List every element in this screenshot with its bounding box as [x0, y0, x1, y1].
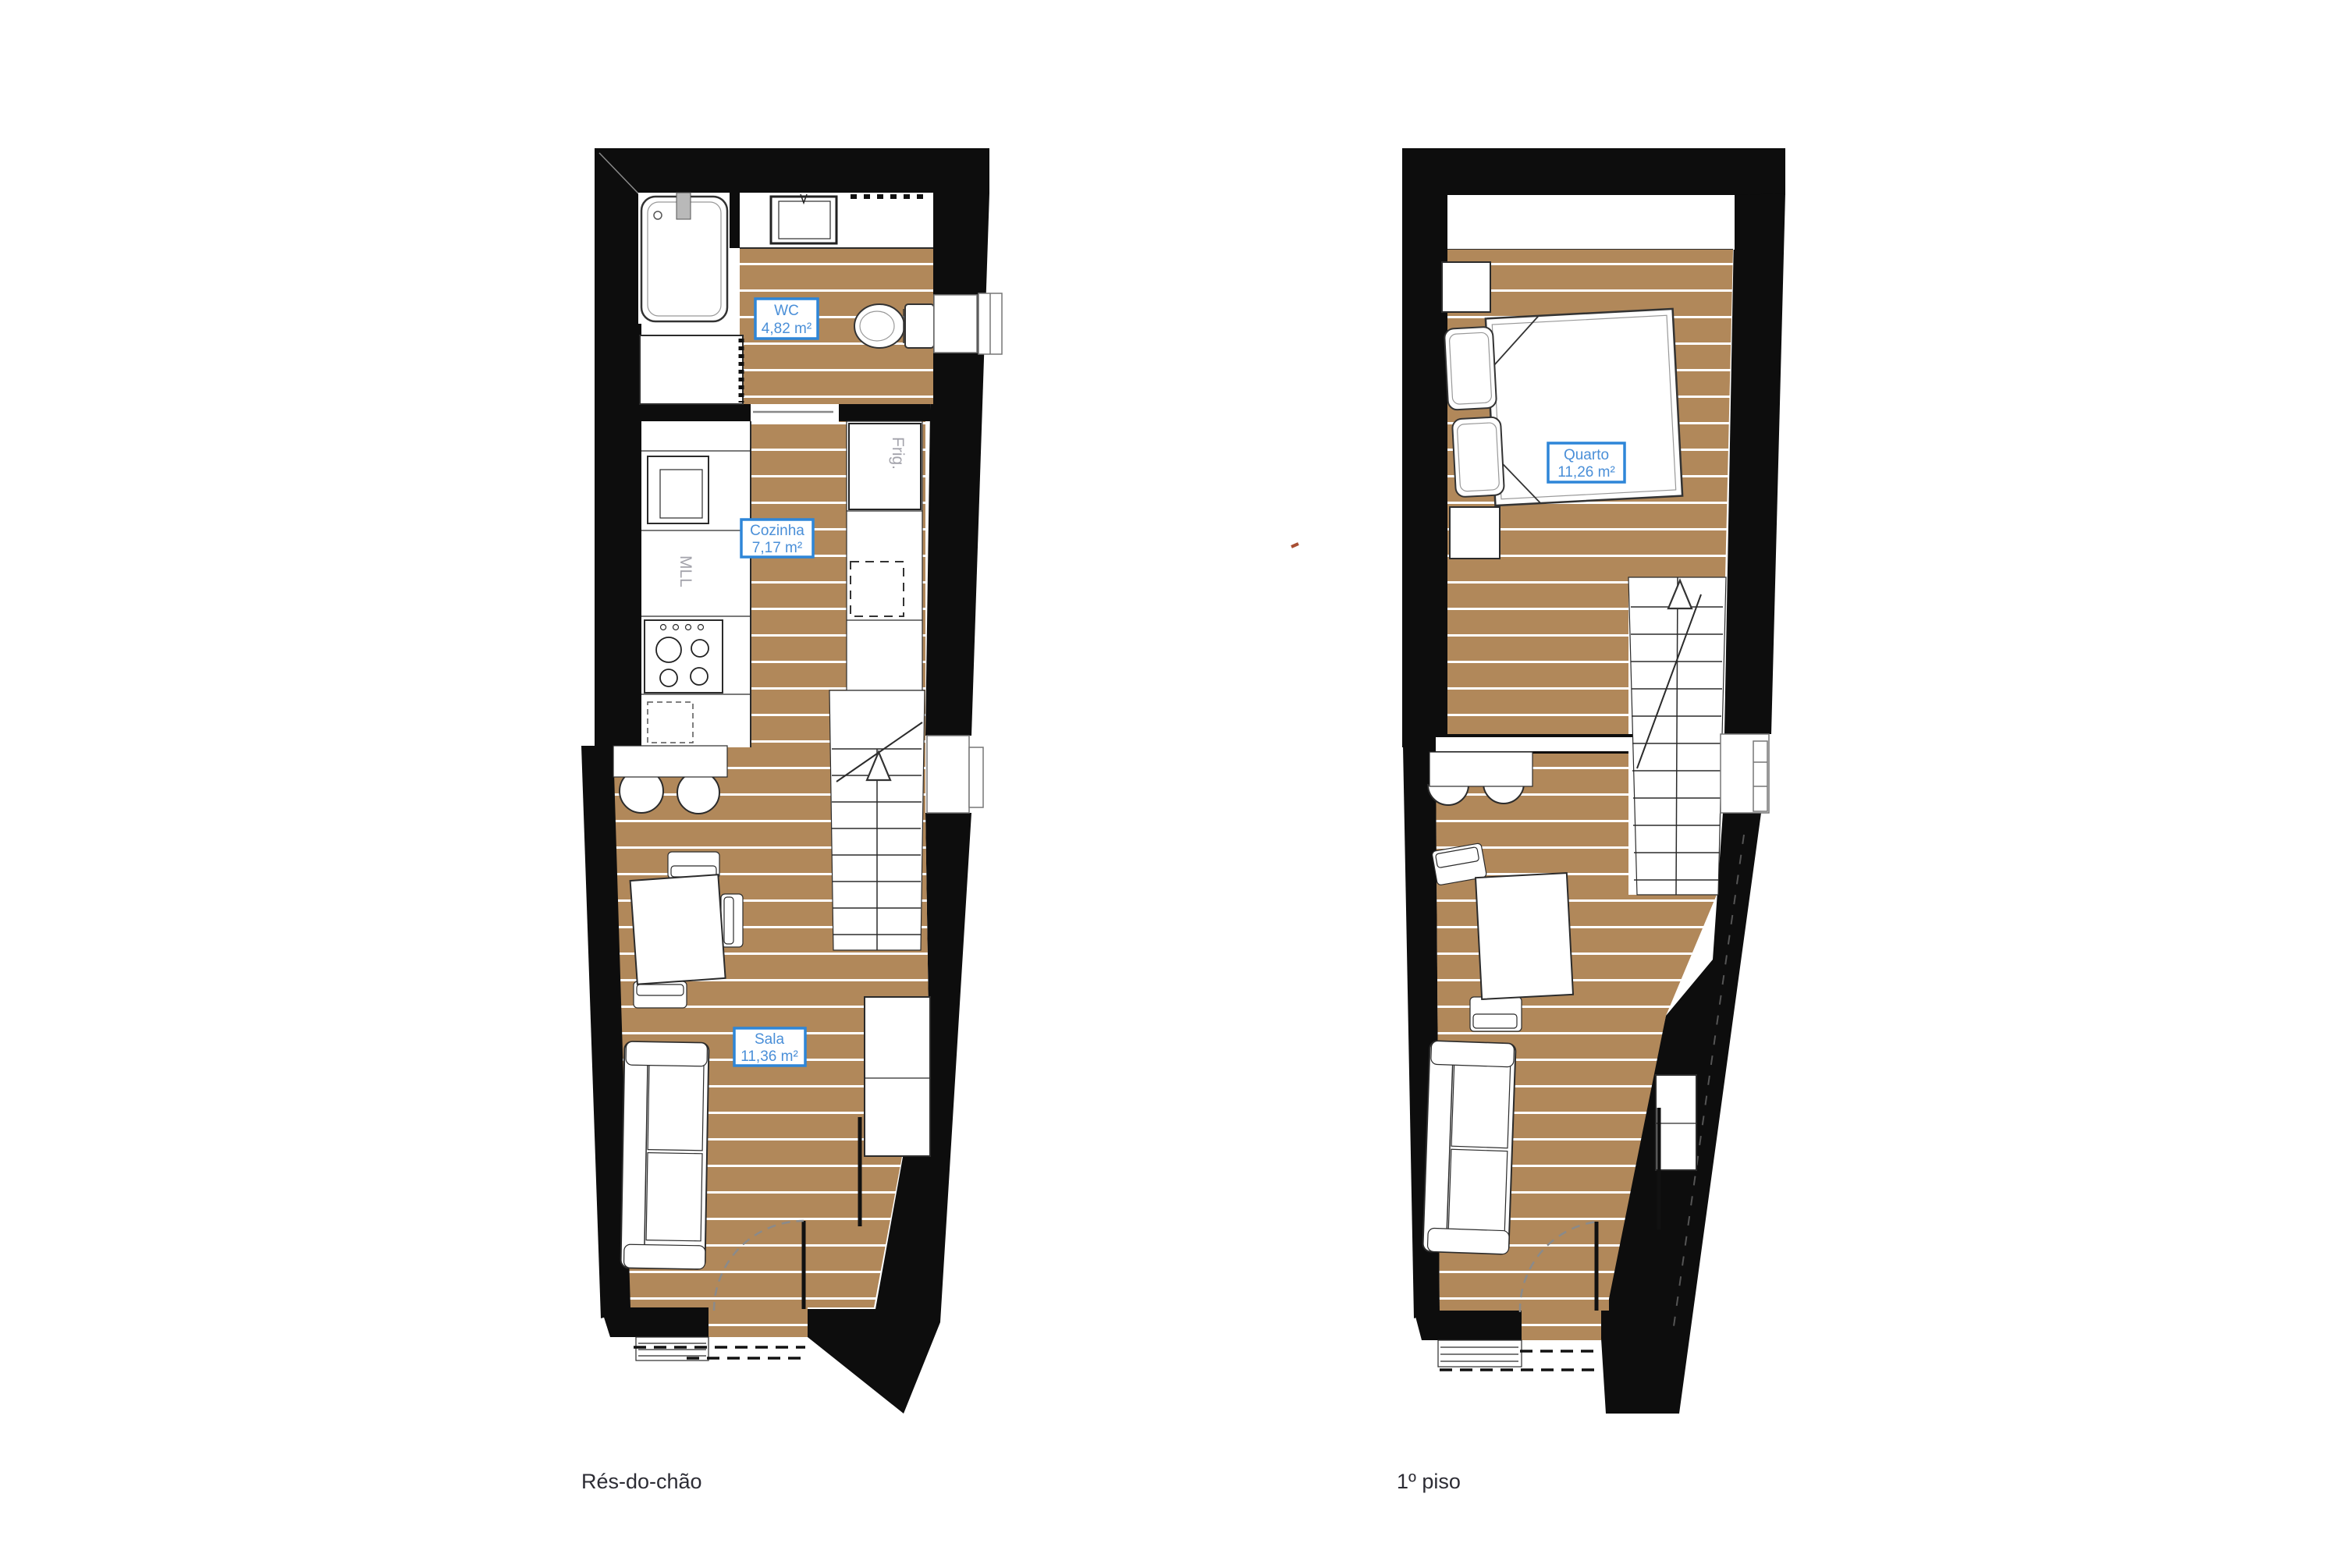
stray-mark	[1291, 544, 1298, 547]
plan-caption-ground: Rés-do-chão	[581, 1470, 702, 1493]
chair	[1470, 997, 1522, 1031]
stove	[645, 620, 723, 693]
svg-text:Cozinha: Cozinha	[750, 523, 804, 539]
level-boundary	[1436, 734, 1639, 754]
stairs-window-ground	[927, 736, 983, 813]
stairs-first	[1628, 577, 1726, 895]
floorplan-canvas: MLL Frig.	[0, 0, 2344, 1568]
kitchen-sink	[648, 456, 709, 523]
svg-text:Sala: Sala	[755, 1031, 784, 1048]
fridge-column: Frig.	[847, 421, 922, 690]
room-label-wc: WC 4,82 m²	[755, 299, 818, 339]
table	[630, 874, 726, 984]
svg-text:11,26 m²: 11,26 m²	[1557, 464, 1615, 481]
room-label-quarto: Quarto 11,26 m²	[1548, 443, 1625, 482]
bathtub	[638, 193, 730, 324]
room-label-sala: Sala 11,36 m²	[734, 1028, 805, 1066]
plan-caption-first: 1º piso	[1397, 1470, 1461, 1493]
stairs-window-first	[1721, 734, 1769, 813]
svg-text:4,82 m²: 4,82 m²	[762, 321, 812, 337]
bathtub-drain	[654, 211, 662, 219]
fridge	[849, 424, 921, 509]
entry-steps-first	[1438, 1340, 1601, 1370]
svg-text:11,36 m²: 11,36 m²	[740, 1048, 798, 1065]
washing-machine-label: MLL	[677, 555, 694, 587]
svg-text:WC: WC	[774, 303, 799, 319]
closet-band	[1447, 195, 1735, 250]
bathtub-faucet	[677, 193, 691, 219]
bathroom-sink	[771, 194, 836, 243]
svg-text:Quarto: Quarto	[1564, 447, 1609, 463]
radiator-cabinet	[640, 335, 743, 404]
stairs-ground	[829, 690, 925, 950]
wc-window	[934, 293, 1002, 354]
nightstand	[1442, 262, 1490, 312]
chair	[721, 894, 743, 947]
table	[1476, 873, 1573, 999]
sofa-ground	[620, 1041, 709, 1269]
entry-steps-ground	[634, 1337, 805, 1360]
room-label-cozinha: Cozinha 7,17 m²	[741, 520, 813, 557]
nightstand	[1450, 507, 1500, 559]
chair	[634, 981, 687, 1008]
toilet	[854, 304, 934, 348]
svg-text:7,17 m²: 7,17 m²	[752, 540, 802, 556]
fridge-label: Frig.	[889, 437, 907, 470]
sofa-first	[1422, 1041, 1515, 1254]
floor-plan-first: Quarto 11,26 m² 1º piso	[1397, 148, 1785, 1493]
floor-plan-ground: MLL Frig.	[581, 148, 1002, 1493]
